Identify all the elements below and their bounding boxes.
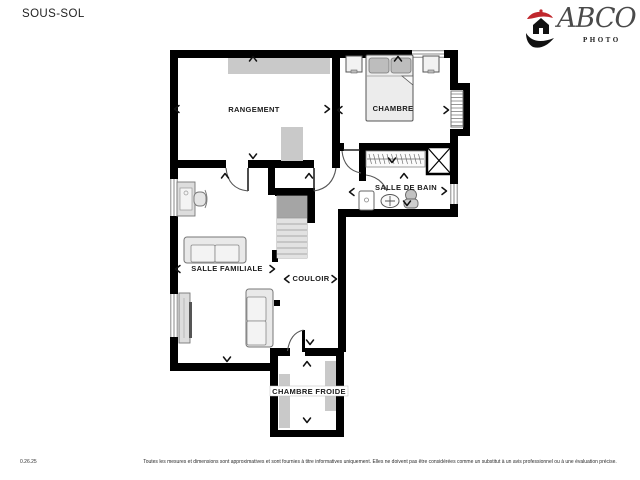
door-rangement — [226, 168, 248, 191]
shaft-icon — [427, 147, 451, 174]
room-label-salle-de-bain: SALLE DE BAIN — [375, 183, 437, 192]
door-corridor-top — [314, 168, 336, 191]
footer-disclaimer: Toutes les mesures et dimensions sont ap… — [132, 459, 628, 465]
column-post — [274, 300, 280, 306]
window-bathroom-right — [450, 184, 458, 204]
window-well-ladder-icon — [451, 91, 463, 127]
storage-shelf — [228, 58, 330, 74]
window-left-lower — [170, 294, 178, 337]
room-label-salle-familiale: SALLE FAMILIALE — [191, 264, 263, 273]
floor-plan: RANGEMENT CHAMBRE SALLE DE BAIN SALLE FA… — [0, 0, 640, 480]
sofa-icon — [184, 237, 246, 263]
nightstand-right-icon — [423, 56, 439, 73]
coldroom-shelf-left — [279, 374, 290, 428]
desk-icon — [177, 182, 195, 216]
room-label-rangement: RANGEMENT — [228, 105, 280, 114]
storage-box — [281, 127, 303, 161]
sink-icon — [381, 195, 399, 208]
door-chambre — [342, 150, 361, 173]
nightstand-left-icon — [346, 56, 362, 73]
room-label-couloir: COULOIR — [292, 274, 329, 283]
tv-console-icon — [179, 293, 192, 343]
footer-date: 0.26.25 — [20, 459, 37, 465]
desk-chair-icon — [194, 190, 207, 208]
staircase-icon — [277, 196, 307, 258]
shower-icon — [359, 191, 374, 210]
windows — [170, 50, 463, 337]
room-label-chambre-froide: CHAMBRE FROIDE — [272, 387, 346, 396]
loveseat-icon — [246, 289, 273, 347]
room-label-chambre: CHAMBRE — [373, 104, 414, 113]
